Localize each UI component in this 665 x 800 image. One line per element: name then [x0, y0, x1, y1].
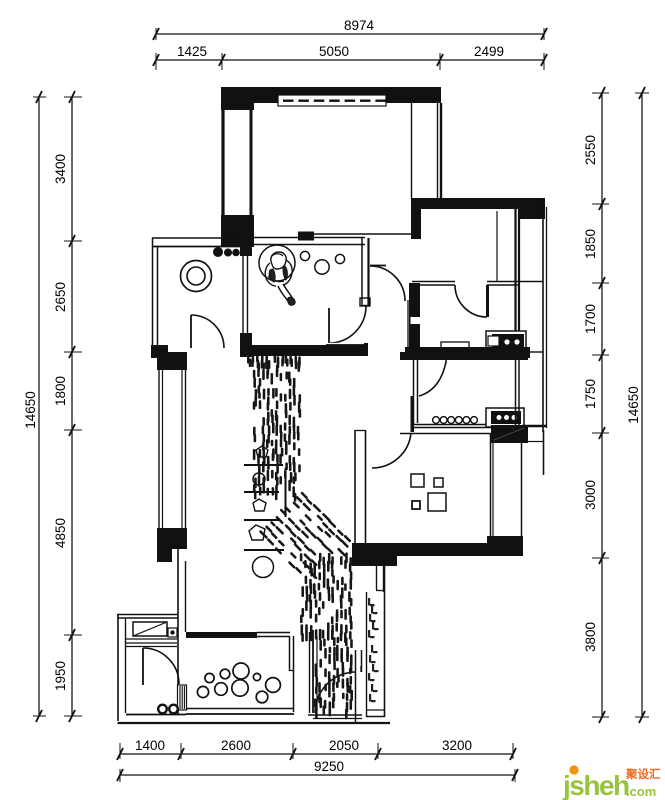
svg-text:3200: 3200: [442, 738, 472, 753]
svg-text:14650: 14650: [626, 386, 641, 424]
svg-text:1750: 1750: [583, 379, 598, 409]
svg-text:1700: 1700: [583, 304, 598, 334]
svg-text:3000: 3000: [583, 480, 598, 510]
svg-text:1425: 1425: [177, 44, 207, 59]
svg-text:3400: 3400: [53, 154, 68, 184]
svg-text:4850: 4850: [53, 518, 68, 548]
svg-text:2600: 2600: [221, 738, 251, 753]
svg-text:1800: 1800: [53, 376, 68, 406]
svg-text:14650: 14650: [23, 391, 38, 429]
svg-text:8974: 8974: [344, 18, 375, 33]
svg-text:聚设汇: 聚设汇: [625, 767, 661, 781]
svg-text:5050: 5050: [319, 44, 349, 59]
svg-text:2499: 2499: [474, 44, 504, 59]
svg-text:jsheh: jsheh: [562, 770, 629, 800]
svg-text:2050: 2050: [329, 738, 359, 753]
svg-text:1400: 1400: [135, 738, 165, 753]
svg-text:3800: 3800: [583, 622, 598, 652]
svg-text:.com: .com: [626, 784, 656, 799]
svg-text:1950: 1950: [53, 661, 68, 691]
svg-text:2550: 2550: [583, 135, 598, 165]
svg-text:9250: 9250: [314, 759, 344, 774]
svg-text:2650: 2650: [53, 282, 68, 312]
svg-text:1850: 1850: [583, 229, 598, 259]
